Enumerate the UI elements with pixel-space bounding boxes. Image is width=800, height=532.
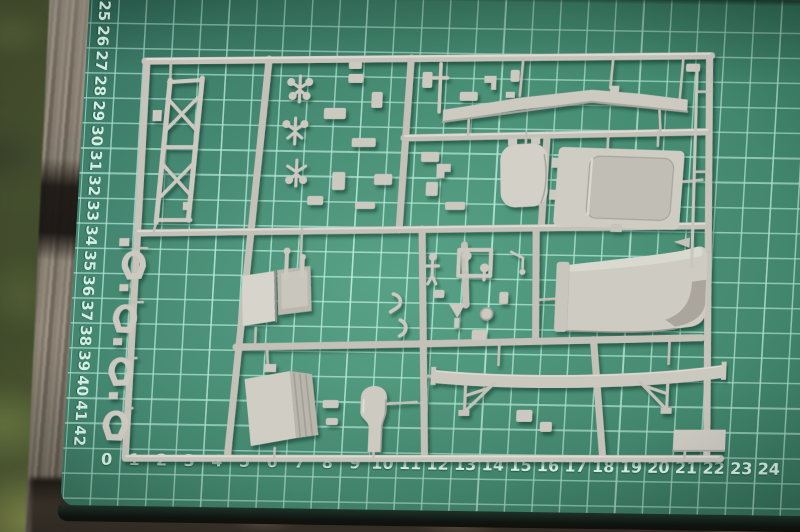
ruler-number: 40	[70, 373, 97, 399]
ruler-number: 38	[73, 323, 100, 349]
ruler-number: 42	[67, 423, 94, 449]
folded-panel-part	[242, 364, 322, 446]
ruler-number: 25	[92, 0, 119, 24]
chassis-frame-part	[148, 78, 202, 222]
ruler-number: 34	[79, 223, 106, 249]
sprue	[94, 52, 742, 468]
steering-parts-cluster	[423, 250, 526, 340]
fender-strip-part	[443, 86, 689, 122]
ruler-number: 35	[77, 248, 104, 274]
air-duct-part	[359, 386, 388, 452]
chassis-beam-part	[429, 362, 727, 416]
cutting-mat: 252627282930313233343536373839404142 012…	[60, 0, 800, 518]
photo-scene: 252627282930313233343536373839404142 012…	[0, 0, 800, 532]
ruler-number: 37	[74, 298, 101, 324]
ruler-number: 32	[81, 173, 108, 199]
ruler-number: 26	[90, 23, 117, 49]
thin-rod-part	[689, 66, 701, 267]
ruler-number: 36	[76, 273, 103, 299]
hood-scoop-part	[554, 238, 709, 332]
ruler-number: 41	[68, 398, 95, 424]
cab-roof-panel-part	[500, 137, 548, 208]
ruler-number: 33	[80, 198, 107, 224]
ruler-number: 23	[727, 459, 756, 478]
corner-plate-part	[673, 430, 736, 452]
cab-rear-panel-part	[547, 147, 685, 234]
sprue-runners	[127, 58, 713, 457]
axle-parts-cluster	[280, 74, 396, 209]
ruler-number: 24	[755, 459, 784, 478]
ruler-number: 39	[71, 348, 98, 374]
